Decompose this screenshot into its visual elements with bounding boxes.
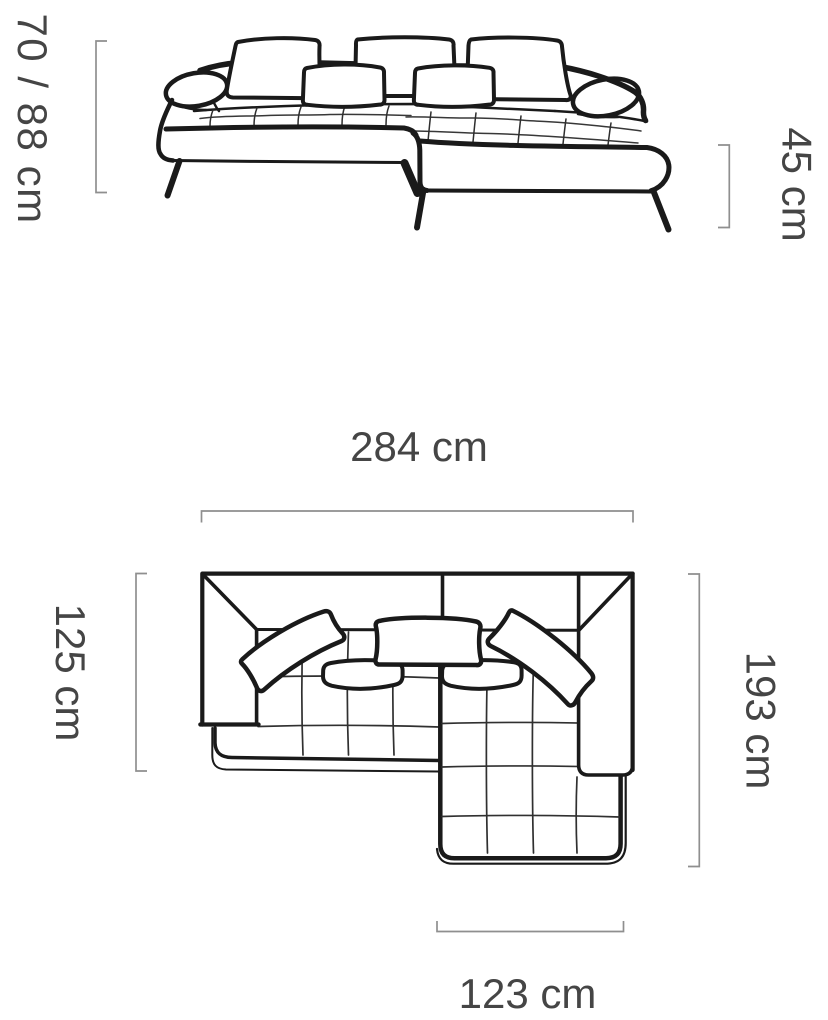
svg-text:284 cm: 284 cm xyxy=(350,423,488,470)
svg-text:45 cm: 45 cm xyxy=(774,127,821,241)
svg-text:123 cm: 123 cm xyxy=(459,970,597,1017)
svg-text:70 / 88 cm: 70 / 88 cm xyxy=(9,13,56,224)
svg-text:125 cm: 125 cm xyxy=(47,604,94,742)
svg-text:193 cm: 193 cm xyxy=(738,652,785,790)
